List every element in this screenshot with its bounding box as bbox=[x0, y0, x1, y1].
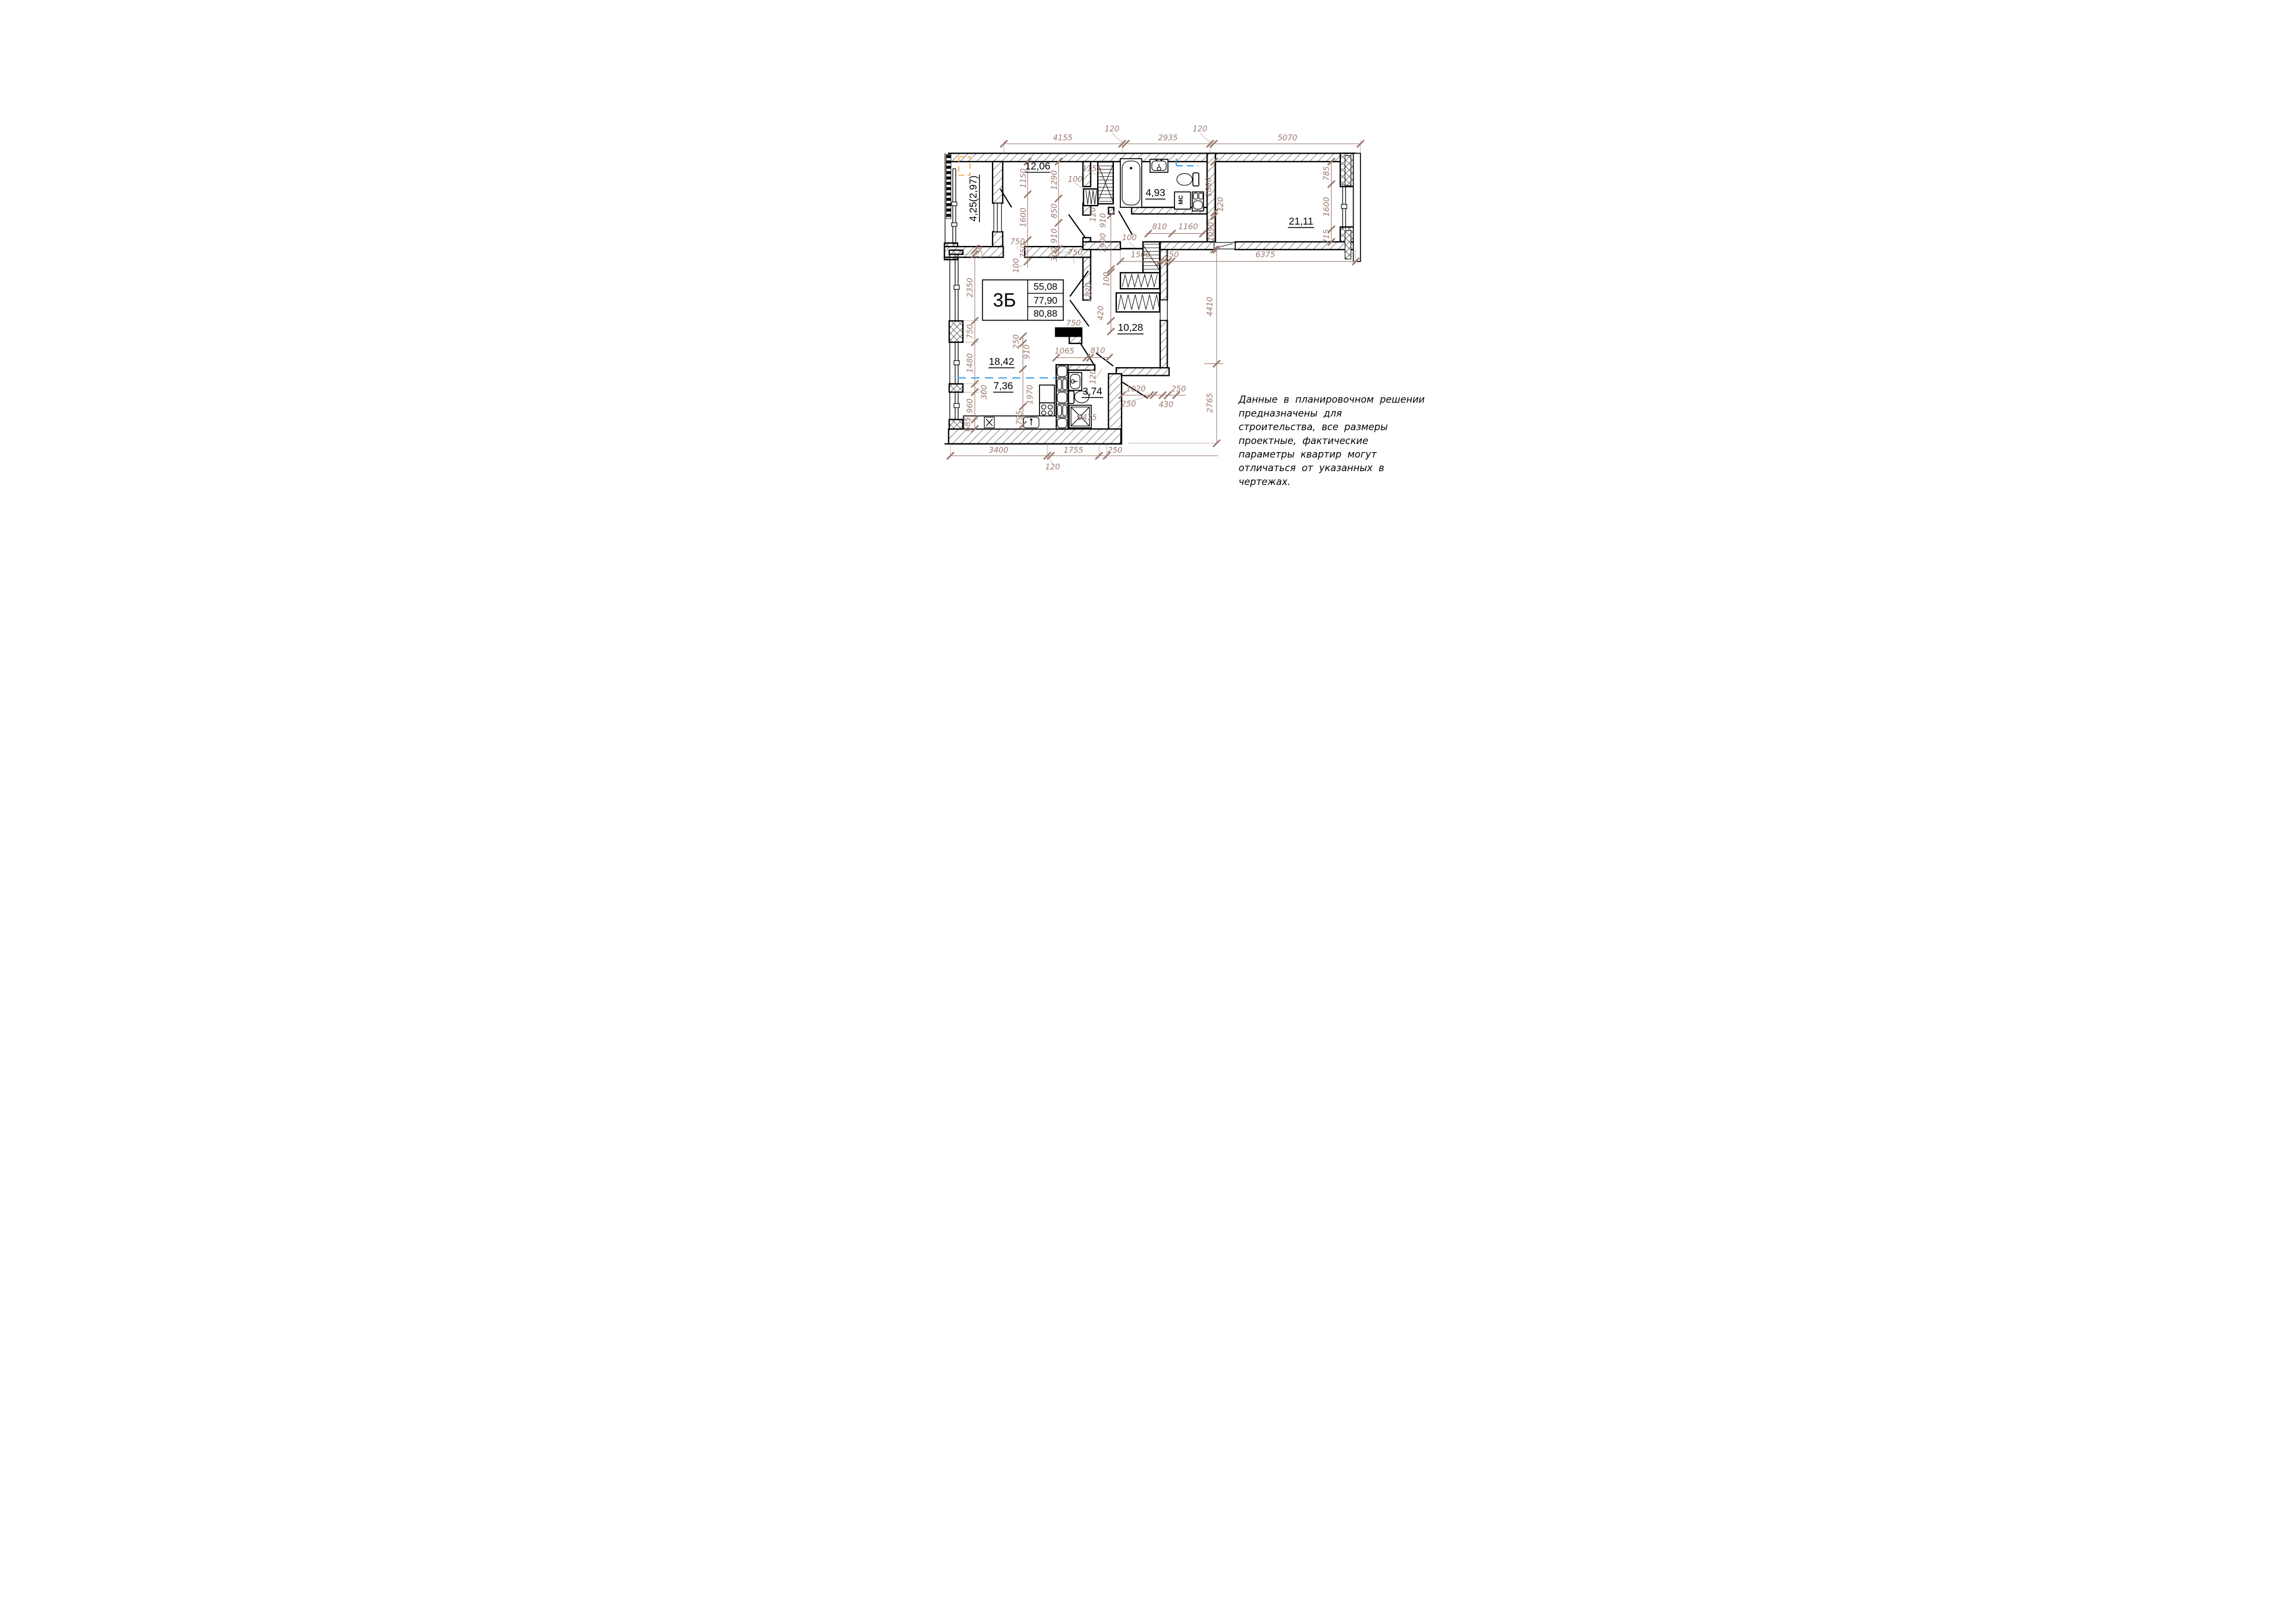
area-bedroom: 12,06 bbox=[1025, 160, 1050, 171]
svg-text:1155: 1155 bbox=[1082, 165, 1102, 173]
svg-text:1160: 1160 bbox=[1178, 223, 1198, 232]
svg-text:910: 910 bbox=[1023, 344, 1032, 359]
svg-text:715: 715 bbox=[1322, 229, 1331, 244]
svg-text:120: 120 bbox=[1045, 463, 1060, 472]
area-living: 18,42 bbox=[989, 356, 1014, 367]
bathtub-icon bbox=[1120, 159, 1142, 207]
svg-text:1600: 1600 bbox=[1020, 208, 1028, 227]
svg-text:250: 250 bbox=[1171, 385, 1186, 394]
unit-type: 3Б bbox=[993, 289, 1016, 311]
svg-text:4,25(2,97): 4,25(2,97) bbox=[967, 176, 979, 222]
dim-top-2: 2935 bbox=[1158, 134, 1177, 143]
area-balcony: 4,25(2,97) bbox=[967, 175, 979, 222]
svg-text:300: 300 bbox=[981, 385, 989, 399]
disclaimer: Данные в планировочном решении предназна… bbox=[1238, 394, 1425, 487]
svg-text:685: 685 bbox=[964, 417, 972, 431]
svg-text:1890: 1890 bbox=[1205, 177, 1214, 197]
svg-text:150: 150 bbox=[975, 245, 984, 260]
disclaimer-line: предназначены для bbox=[1239, 408, 1342, 419]
svg-text:1020: 1020 bbox=[1126, 385, 1146, 394]
wardrobe-hall-mid bbox=[1120, 273, 1160, 289]
svg-text:1600: 1600 bbox=[1322, 197, 1331, 217]
svg-text:1755: 1755 bbox=[1064, 446, 1083, 455]
floor-plan-page: МС bbox=[689, 0, 1607, 649]
svg-text:1475: 1475 bbox=[1078, 414, 1097, 423]
svg-text:1090: 1090 bbox=[1207, 222, 1216, 241]
disclaimer-line: чертежах. bbox=[1239, 476, 1291, 487]
washing-machine-icon: МС bbox=[1175, 192, 1191, 209]
kitchen-counter-side bbox=[1039, 385, 1054, 403]
svg-text:750: 750 bbox=[1068, 248, 1083, 257]
svg-text:1480: 1480 bbox=[966, 353, 975, 373]
dim-top-1: 120 bbox=[1105, 125, 1120, 133]
bathroom-sink-icon bbox=[1150, 159, 1168, 173]
disclaimer-line: строительства, все размеры bbox=[1239, 421, 1388, 432]
area-room21: 21,11 bbox=[1289, 215, 1313, 227]
balcony-ladder-icon bbox=[946, 155, 951, 219]
area-hall: 10,28 bbox=[1118, 322, 1143, 333]
window-left-1 bbox=[950, 254, 959, 320]
svg-text:785: 785 bbox=[1322, 166, 1331, 181]
disclaimer-line: отличаться от указанных в bbox=[1239, 462, 1384, 473]
unit-living-area: 55,08 bbox=[1034, 282, 1057, 292]
svg-text:910: 910 bbox=[1050, 229, 1059, 244]
wardrobe-bedroom-small bbox=[1083, 189, 1098, 206]
svg-text:120: 120 bbox=[1089, 207, 1098, 222]
svg-text:430: 430 bbox=[1159, 401, 1174, 409]
svg-text:910: 910 bbox=[1099, 213, 1108, 228]
svg-text:250: 250 bbox=[1121, 400, 1136, 409]
svg-text:810: 810 bbox=[1152, 223, 1167, 232]
stove-icon bbox=[1039, 403, 1054, 417]
svg-text:2350: 2350 bbox=[966, 278, 975, 297]
unit-area: 77,90 bbox=[1034, 296, 1057, 306]
svg-text:1065: 1065 bbox=[1054, 347, 1074, 356]
svg-text:1290: 1290 bbox=[1050, 170, 1059, 190]
svg-text:1500: 1500 bbox=[1131, 251, 1150, 260]
svg-text:750: 750 bbox=[1066, 319, 1081, 328]
unit-total-area: 80,88 bbox=[1034, 309, 1057, 319]
svg-text:120: 120 bbox=[1089, 370, 1098, 384]
svg-text:250: 250 bbox=[1012, 334, 1021, 349]
svg-text:1970: 1970 bbox=[1026, 385, 1035, 404]
svg-text:1900: 1900 bbox=[1099, 233, 1108, 253]
washer-label: МС bbox=[1178, 195, 1184, 204]
dim-top-3: 120 bbox=[1192, 125, 1207, 133]
floor-plan-drawing: МС bbox=[689, 0, 1607, 649]
kitchen-cabinet-column bbox=[1056, 365, 1068, 429]
wardrobe-hall-low bbox=[1116, 293, 1160, 312]
unit-table: 3Б 55,08 77,90 80,88 bbox=[982, 280, 1063, 320]
svg-text:250: 250 bbox=[1108, 446, 1123, 455]
svg-text:100: 100 bbox=[1103, 272, 1112, 287]
dim-top-4: 5070 bbox=[1277, 134, 1297, 143]
dim-top-0: 4155 bbox=[1053, 134, 1072, 143]
svg-text:810: 810 bbox=[1090, 346, 1105, 355]
disclaimer-line: проектные, фактические bbox=[1239, 435, 1368, 446]
wc-sink-icon bbox=[1069, 372, 1082, 390]
svg-text:960: 960 bbox=[966, 398, 975, 413]
svg-text:100: 100 bbox=[1068, 176, 1083, 184]
bathroom-door-swing bbox=[1119, 211, 1132, 234]
svg-text:795: 795 bbox=[1015, 411, 1024, 425]
svg-text:100: 100 bbox=[1122, 234, 1137, 242]
svg-text:750: 750 bbox=[966, 324, 975, 338]
svg-text:420: 420 bbox=[1097, 306, 1105, 320]
svg-text:6375: 6375 bbox=[1255, 251, 1275, 260]
svg-text:4410: 4410 bbox=[1206, 297, 1215, 316]
svg-text:3400: 3400 bbox=[989, 446, 1008, 455]
svg-text:120: 120 bbox=[1217, 197, 1225, 212]
svg-text:1820: 1820 bbox=[1085, 282, 1094, 302]
svg-text:100: 100 bbox=[1012, 258, 1021, 273]
svg-text:250: 250 bbox=[1164, 251, 1179, 260]
area-bathroom: 4,93 bbox=[1146, 187, 1165, 199]
svg-text:850: 850 bbox=[1050, 204, 1059, 219]
bedroom-door-swing bbox=[1069, 215, 1086, 238]
bathroom-cabinet-sink-icon bbox=[1192, 192, 1204, 211]
area-kitchen: 7,36 bbox=[993, 380, 1013, 391]
window-left-3 bbox=[950, 392, 959, 419]
toilet-bathroom-icon bbox=[1177, 173, 1199, 186]
svg-text:300: 300 bbox=[1050, 247, 1059, 262]
disclaimer-line: Данные в планировочном решении bbox=[1238, 394, 1425, 405]
svg-text:2765: 2765 bbox=[1206, 393, 1215, 413]
area-wc: 3,74 bbox=[1083, 385, 1102, 397]
disclaimer-line: параметры квартир могут bbox=[1239, 449, 1377, 460]
svg-text:750: 750 bbox=[1010, 238, 1025, 247]
entrance-door-leaf bbox=[1160, 300, 1167, 320]
